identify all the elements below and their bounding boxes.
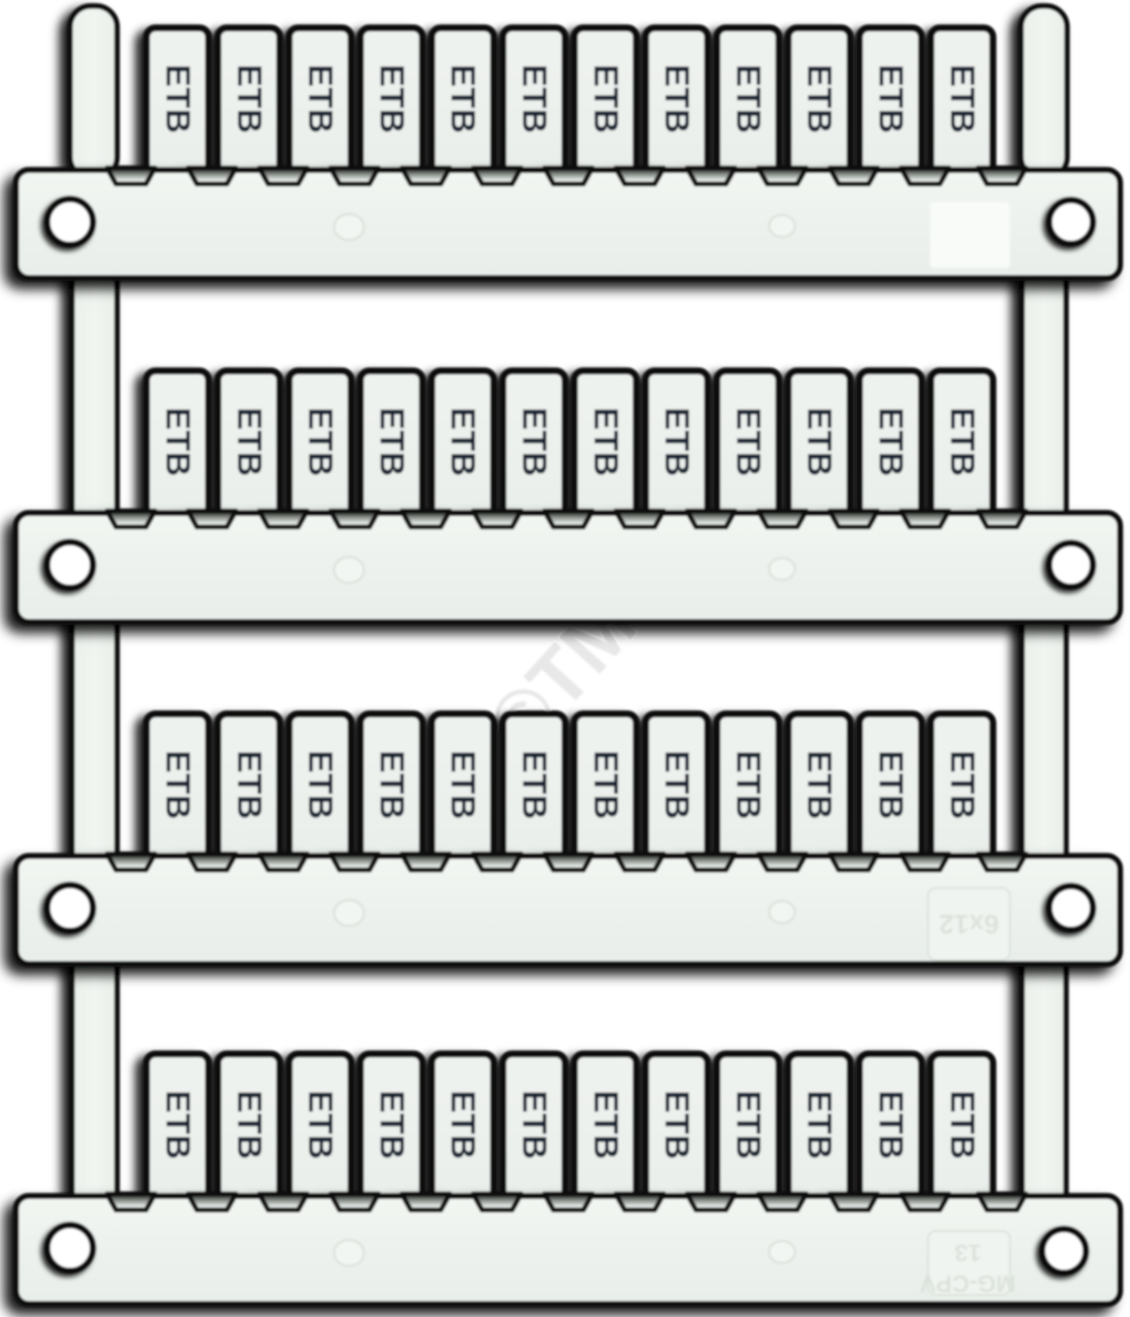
svg-text:ETB: ETB [872,64,910,134]
svg-text:ETB: ETB [301,1090,339,1160]
svg-text:ETB: ETB [159,407,197,477]
svg-text:ETB: ETB [943,1090,981,1160]
svg-text:ETB: ETB [159,750,197,820]
svg-text:ETB: ETB [658,1090,696,1160]
svg-text:ETB: ETB [729,1090,767,1160]
svg-text:ETB: ETB [658,407,696,477]
svg-text:ETB: ETB [943,64,981,134]
svg-text:ETB: ETB [943,407,981,477]
svg-text:ETB: ETB [301,64,339,134]
svg-text:ETB: ETB [729,64,767,134]
svg-text:ETB: ETB [444,64,482,134]
svg-text:ETB: ETB [658,64,696,134]
svg-text:ETB: ETB [372,64,410,134]
svg-text:ETB: ETB [800,750,838,820]
svg-text:ETB: ETB [444,407,482,477]
svg-text:ETB: ETB [372,750,410,820]
svg-text:ETB: ETB [872,750,910,820]
svg-text:ETB: ETB [515,64,553,134]
svg-text:ETB: ETB [658,750,696,820]
svg-text:ETB: ETB [586,750,624,820]
svg-text:ETB: ETB [301,750,339,820]
svg-text:ETB: ETB [800,1090,838,1160]
svg-text:ETB: ETB [301,407,339,477]
svg-text:ETB: ETB [230,750,268,820]
svg-text:ETB: ETB [515,1090,553,1160]
svg-text:ETB: ETB [586,1090,624,1160]
svg-text:ETB: ETB [444,750,482,820]
svg-text:ETB: ETB [872,1090,910,1160]
svg-text:ETB: ETB [230,1090,268,1160]
svg-text:ETB: ETB [729,407,767,477]
svg-text:ETB: ETB [230,407,268,477]
svg-text:13: 13 [955,1239,982,1266]
svg-text:ETB: ETB [586,64,624,134]
svg-text:ETB: ETB [444,1090,482,1160]
svg-text:ETB: ETB [586,407,624,477]
svg-text:ETB: ETB [372,1090,410,1160]
svg-text:ETB: ETB [515,407,553,477]
svg-text:ETB: ETB [943,750,981,820]
svg-text:6x12: 6x12 [939,909,999,939]
svg-text:ETB: ETB [159,64,197,134]
svg-text:ETB: ETB [159,1090,197,1160]
svg-text:ETB: ETB [800,64,838,134]
svg-text:MG-CPV: MG-CPV [920,1270,1016,1297]
svg-text:ETB: ETB [729,750,767,820]
svg-text:ETB: ETB [372,407,410,477]
svg-text:ETB: ETB [230,64,268,134]
svg-text:ETB: ETB [800,407,838,477]
svg-text:ETB: ETB [515,750,553,820]
svg-text:ETB: ETB [872,407,910,477]
